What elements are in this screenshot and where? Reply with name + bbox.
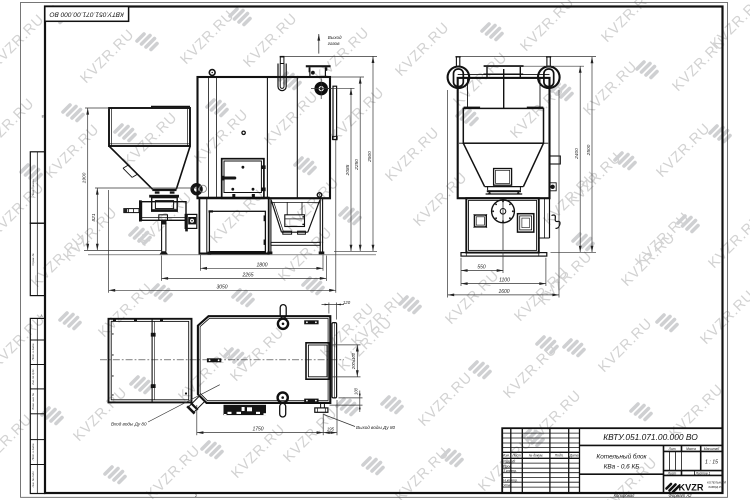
svg-text:Формат А2: Формат А2 (669, 493, 693, 498)
svg-text:KVZR.RU: KVZR.RU (0, 96, 38, 156)
svg-text:KVZR.RU: KVZR.RU (78, 27, 138, 87)
svg-text:2500: 2500 (367, 151, 373, 163)
svg-text:KVZR.RU: KVZR.RU (411, 170, 471, 230)
svg-text:KVZR.RU: KVZR.RU (96, 281, 156, 341)
svg-text:ЗАВОД.РУ: ЗАВОД.РУ (708, 485, 724, 489)
svg-text:KVZR.RU: KVZR.RU (581, 59, 641, 119)
svg-text:1 : 15: 1 : 15 (705, 459, 718, 465)
svg-text:KVZR.RU: KVZR.RU (262, 89, 322, 149)
svg-text:KVZR.RU: KVZR.RU (416, 370, 476, 430)
svg-text:KVZR.RU: KVZR.RU (0, 312, 49, 372)
svg-text:1100: 1100 (499, 278, 510, 284)
svg-text:Выход: Выход (328, 35, 342, 40)
svg-text:KVZR.RU: KVZR.RU (0, 180, 48, 240)
svg-text:550: 550 (477, 265, 486, 271)
svg-text:KVZR.RU: KVZR.RU (383, 125, 443, 185)
svg-text:200±100: 200±100 (351, 352, 356, 370)
svg-text:3050: 3050 (216, 284, 227, 290)
svg-text:Разраб.: Разраб. (503, 459, 515, 463)
svg-text:KVZR: KVZR (679, 483, 704, 493)
svg-text:KVZR.RU: KVZR.RU (525, 388, 585, 448)
svg-text:Выход воды Ду 80: Выход воды Ду 80 (356, 425, 396, 430)
svg-text:КВТУ.051.071.00.000 ВО: КВТУ.051.071.00.000 ВО (603, 432, 698, 442)
svg-text:2500: 2500 (586, 144, 592, 156)
svg-text:KVZR.RU: KVZR.RU (393, 20, 453, 80)
svg-text:Перв. примен.: Перв. примен. (31, 178, 35, 196)
svg-text:1900: 1900 (81, 172, 87, 183)
svg-text:KVZR.RU: KVZR.RU (0, 12, 48, 72)
svg-text:KVZR.RU: KVZR.RU (670, 35, 730, 95)
svg-text:2400: 2400 (574, 148, 580, 160)
svg-text:1600: 1600 (498, 289, 509, 295)
svg-text:821: 821 (91, 213, 97, 221)
svg-text:Инв. № подл.: Инв. № подл. (31, 470, 35, 487)
svg-text:1750: 1750 (252, 426, 263, 432)
svg-text:1800: 1800 (256, 262, 267, 268)
svg-text:Лист: Лист (667, 471, 677, 475)
svg-text:Н.контр.: Н.контр. (503, 478, 517, 482)
svg-text:KVZR.RU: KVZR.RU (71, 385, 131, 445)
svg-text:2250: 2250 (354, 159, 360, 171)
svg-text:KVZR.RU: KVZR.RU (281, 406, 341, 466)
svg-text:8: 8 (42, 115, 44, 119)
svg-text:KVZR.RU: KVZR.RU (619, 230, 679, 290)
svg-text:Утв.: Утв. (503, 483, 511, 487)
svg-text:KVZR.RU: KVZR.RU (228, 325, 288, 385)
svg-text:Лист: Лист (511, 454, 521, 458)
svg-text:195: 195 (327, 426, 335, 431)
svg-text:KVZR.RU: KVZR.RU (144, 443, 204, 500)
svg-text:газов: газов (328, 41, 340, 46)
svg-text:Справ. №: Справ. № (31, 253, 35, 265)
svg-text:Вход воды Ду 80: Вход воды Ду 80 (111, 421, 147, 426)
svg-text:KVZR.RU: KVZR.RU (313, 25, 373, 85)
svg-text:KVZR.RU: KVZR.RU (698, 288, 750, 348)
svg-text:Дата: Дата (569, 454, 579, 458)
svg-text:Инв. № дубл.: Инв. № дубл. (31, 368, 35, 385)
svg-text:Копировал: Копировал (614, 493, 635, 498)
svg-text:Масштаб: Масштаб (704, 447, 720, 451)
svg-text:Лит.: Лит. (668, 447, 677, 451)
svg-text:KVZR.RU: KVZR.RU (283, 175, 343, 235)
svg-text:Листов 1: Листов 1 (695, 471, 711, 475)
svg-text:Взам. инв. №: Взам. инв. № (31, 393, 35, 410)
svg-text:KVZR.RU: KVZR.RU (43, 122, 103, 182)
svg-text:КОТЕЛЬНЫЙ: КОТЕЛЬНЫЙ (707, 481, 727, 485)
svg-text:КВа - 0,6 КБ: КВа - 0,6 КБ (604, 463, 640, 470)
svg-text:120: 120 (343, 300, 351, 305)
svg-text:Изм.: Изм. (503, 454, 510, 458)
svg-text:Котельный блок: Котельный блок (596, 453, 647, 461)
svg-text:Т.контр.: Т.контр. (503, 469, 517, 473)
svg-text:КВТУ.051.071.00.000 ВО: КВТУ.051.071.00.000 ВО (49, 10, 123, 17)
svg-text:100: 100 (354, 387, 359, 395)
svg-text:KVZR.RU: KVZR.RU (654, 121, 714, 181)
svg-text:Подп. и дата: Подп. и дата (31, 443, 35, 460)
svg-text:Масса: Масса (686, 447, 696, 451)
svg-text:№ докум.: № докум. (529, 454, 544, 458)
svg-text:Подп. и дата: Подп. и дата (31, 343, 35, 360)
svg-text:KVZR.RU: KVZR.RU (443, 268, 503, 328)
svg-text:2085: 2085 (345, 164, 351, 176)
svg-text:Подп.: Подп. (555, 454, 564, 458)
svg-text:2265: 2265 (241, 273, 253, 279)
svg-text:Пров.: Пров. (503, 464, 512, 468)
svg-text:KVZR.RU: KVZR.RU (596, 316, 656, 376)
svg-text:KVZR.RU: KVZR.RU (518, 0, 578, 55)
